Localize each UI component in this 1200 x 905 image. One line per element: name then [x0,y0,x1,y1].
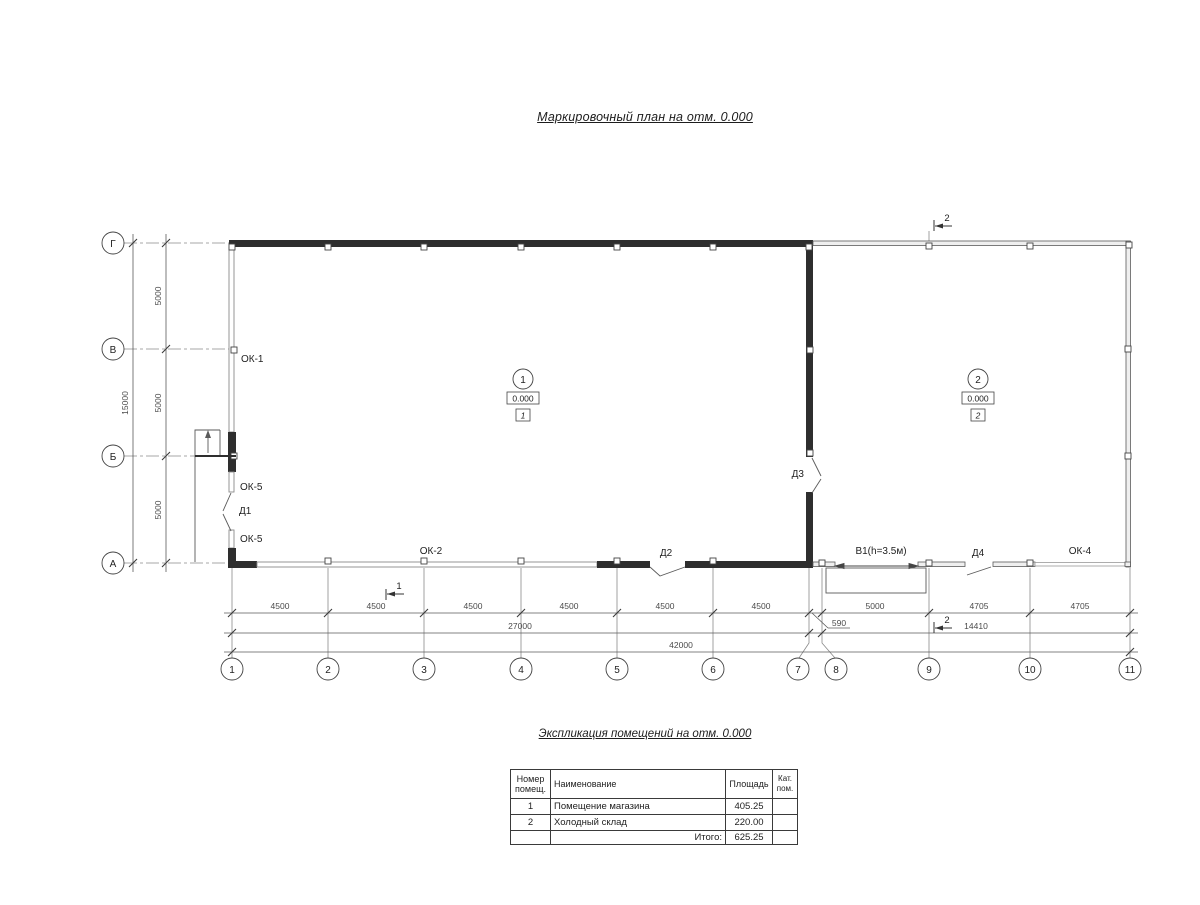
dim-4500-2: 4500 [367,601,386,611]
axis-row-g: Г [110,239,116,250]
dimension-texts: 4500 4500 4500 4500 4500 4500 590 5000 4… [120,286,1090,650]
axis-row-v: В [110,345,117,356]
door-d4-leaf [967,567,991,575]
dim-42000: 42000 [669,640,693,650]
explication-table: Номер помещ. Наименование Площадь Кат. п… [510,769,798,845]
floor-plan-canvas: 4500 4500 4500 4500 4500 4500 590 5000 4… [0,0,1200,900]
axis-col-1: 1 [229,665,235,676]
header-category-line1: Кат. [776,774,794,784]
opening-labels: ОК-1 ОК-5 Д1 ОК-5 ОК-2 Д2 Д3 В1(h=3.5м) … [239,354,1092,559]
total-category-cell [773,831,798,845]
label-ok5-upper: ОК-5 [240,482,263,493]
axis-col-7: 7 [795,665,801,676]
door-d3-leaf2 [812,479,821,493]
dim-590: 590 [832,618,846,628]
dim-27000: 27000 [508,621,532,631]
dim-v5000-1: 5000 [153,286,163,305]
label-ok2: ОК-2 [420,546,443,557]
label-ok5-lower: ОК-5 [240,534,263,545]
room-mark-1: 1 0.000 1 [507,369,539,421]
label-d3: Д3 [792,469,805,480]
dim-5000: 5000 [866,601,885,611]
axis-col-4: 4 [518,665,524,676]
axis-col-2: 2 [325,665,331,676]
axis-row-a: А [110,559,117,570]
header-room-number-line2: помещ. [514,784,547,794]
axis-col-8: 8 [833,665,839,676]
dim-4705-1: 4705 [970,601,989,611]
drawing-sheet: Маркировочный план на отм. 0.000 [0,0,1200,900]
table-row: 2 Холодный склад 220.00 [511,815,798,831]
door-d1-leaf [223,493,231,511]
total-label: Итого: [551,831,726,845]
room2-tag: 2 [975,411,981,421]
row1-area: 405.25 [726,799,773,815]
section-mark-1: 1 [386,581,404,600]
total-empty-cell [511,831,551,845]
axis-col-3: 3 [421,665,427,676]
axis-col-11: 11 [1125,665,1136,676]
drawing-title: Маркировочный план на отм. 0.000 [455,110,835,124]
dim-4705-2: 4705 [1071,601,1090,611]
row1-number: 1 [511,799,551,815]
row2-area: 220.00 [726,815,773,831]
total-row: Итого: 625.25 [511,831,798,845]
header-room-number: Номер помещ. [511,770,551,799]
axis-col-5: 5 [614,665,620,676]
door-d2-leaf [650,567,685,576]
label-ok4: ОК-4 [1069,546,1092,557]
axis-col-10: 10 [1024,665,1036,676]
label-d1: Д1 [239,506,252,517]
room1-number: 1 [520,375,526,386]
column-markers [229,242,1132,566]
dimension-lines [133,234,1138,652]
section-mark-2-top: 2 [934,213,952,231]
col-axis-bubbles: 1 2 3 4 5 6 7 8 9 10 11 [221,658,1141,680]
axis-col-6: 6 [710,665,716,676]
door-d1-leaf2 [223,514,231,531]
section2-bottom-label: 2 [944,615,949,626]
label-v1: В1(h=3.5м) [855,546,906,557]
room-mark-2: 2 0.000 2 [962,369,994,421]
explication-header-row: Номер помещ. Наименование Площадь Кат. п… [511,770,798,799]
header-area: Площадь [726,770,773,799]
axis-grid-lines [124,231,1130,658]
door-d3-leaf [812,458,821,476]
label-ok1: ОК-1 [241,354,264,365]
row2-category [773,815,798,831]
room1-tag: 1 [521,411,526,421]
label-d2: Д2 [660,548,673,559]
header-category: Кат. пом. [773,770,798,799]
section-mark-2-bottom: 2 [934,615,952,633]
dim-ticks [129,239,1134,656]
row1-category [773,799,798,815]
section2-top-label: 2 [944,213,949,224]
row2-number: 2 [511,815,551,831]
dim-4500-1: 4500 [271,601,290,611]
header-category-line2: пом. [776,784,794,794]
axis-row-b: Б [110,452,117,463]
dim-14410: 14410 [964,621,988,631]
axis-col-9: 9 [926,665,932,676]
header-room-number-line1: Номер [514,774,547,784]
table-row: 1 Помещение магазина 405.25 [511,799,798,815]
room1-elevation: 0.000 [512,394,534,404]
room2-number: 2 [975,375,981,386]
dim-4500-3: 4500 [464,601,483,611]
label-d4: Д4 [972,548,985,559]
dim-4500-5: 4500 [656,601,675,611]
room2-elevation: 0.000 [967,394,989,404]
dim-v5000-3: 5000 [153,500,163,519]
loading-platform [826,568,926,593]
header-name: Наименование [551,770,726,799]
dim-v5000-2: 5000 [153,393,163,412]
explication-title: Экспликация помещений на отм. 0.000 [495,728,795,740]
section1-label: 1 [396,581,401,592]
total-area: 625.25 [726,831,773,845]
row2-name: Холодный склад [551,815,726,831]
door-leaves [223,458,991,576]
row1-name: Помещение магазина [551,799,726,815]
dim-4500-6: 4500 [752,601,771,611]
dim-v15000: 15000 [120,391,130,415]
dim-4500-4: 4500 [560,601,579,611]
